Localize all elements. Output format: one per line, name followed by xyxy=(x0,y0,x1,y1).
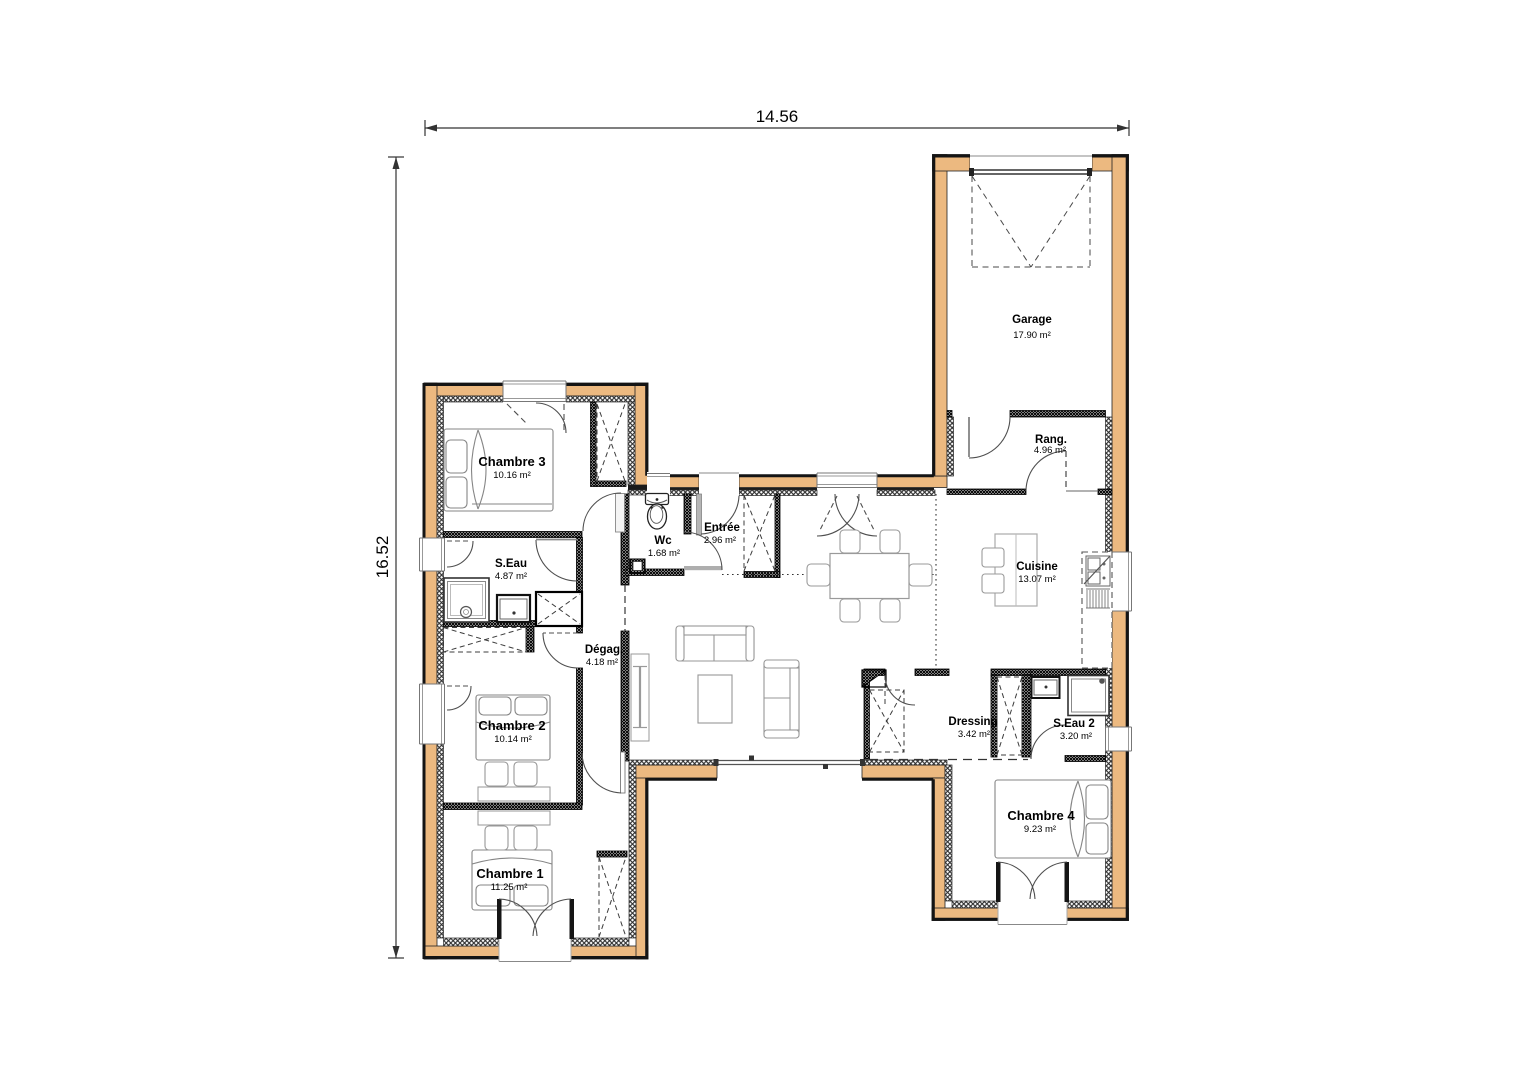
svg-text:Chambre 4: Chambre 4 xyxy=(1007,808,1075,823)
svg-text:1.68 m²: 1.68 m² xyxy=(648,548,680,559)
svg-text:Chambre 2: Chambre 2 xyxy=(478,718,545,733)
svg-text:4.96 m²: 4.96 m² xyxy=(1034,445,1066,456)
svg-text:9.23 m²: 9.23 m² xyxy=(1024,824,1056,835)
svg-text:17.90 m²: 17.90 m² xyxy=(1013,330,1051,341)
svg-text:2.96 m²: 2.96 m² xyxy=(704,535,736,546)
svg-text:Dressing: Dressing xyxy=(948,716,997,728)
svg-text:4.87 m²: 4.87 m² xyxy=(495,571,527,582)
svg-text:Cuisine: Cuisine xyxy=(1016,561,1058,573)
svg-text:11.25 m²: 11.25 m² xyxy=(491,882,528,893)
svg-text:Wc: Wc xyxy=(654,535,672,547)
svg-text:3.20 m²: 3.20 m² xyxy=(1060,731,1092,742)
svg-text:Entrée: Entrée xyxy=(704,522,740,534)
svg-text:14.56: 14.56 xyxy=(756,107,799,126)
svg-text:Garage: Garage xyxy=(1012,314,1052,326)
svg-text:Dégag.: Dégag. xyxy=(585,644,623,656)
svg-text:S.Eau: S.Eau xyxy=(495,558,527,570)
svg-text:3.42 m²: 3.42 m² xyxy=(958,729,990,740)
svg-text:4.18 m²: 4.18 m² xyxy=(586,657,618,668)
svg-text:S.Eau 2: S.Eau 2 xyxy=(1053,718,1095,730)
svg-text:16.52: 16.52 xyxy=(373,536,392,579)
svg-text:13.07 m²: 13.07 m² xyxy=(1018,574,1056,585)
svg-text:Chambre 3: Chambre 3 xyxy=(478,454,545,469)
svg-text:Chambre 1: Chambre 1 xyxy=(476,866,543,881)
svg-text:10.16 m²: 10.16 m² xyxy=(493,470,531,481)
svg-text:10.14 m²: 10.14 m² xyxy=(494,734,532,745)
